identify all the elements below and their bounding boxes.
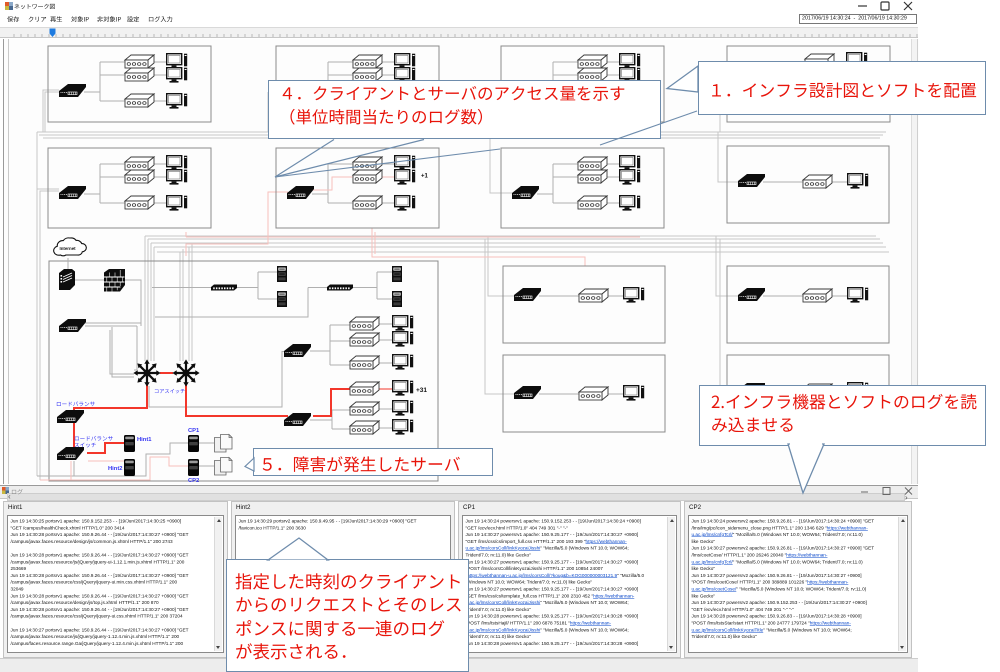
svg-text:Internet: Internet <box>60 246 77 251</box>
svg-text:Hint2: Hint2 <box>108 466 123 472</box>
svg-text:Hint1: Hint1 <box>137 437 152 443</box>
svg-text:CP1: CP1 <box>188 428 200 434</box>
svg-text:+1: +1 <box>421 174 429 180</box>
svg-text:CP2: CP2 <box>188 478 199 484</box>
svg-text:+31: +31 <box>416 387 427 394</box>
